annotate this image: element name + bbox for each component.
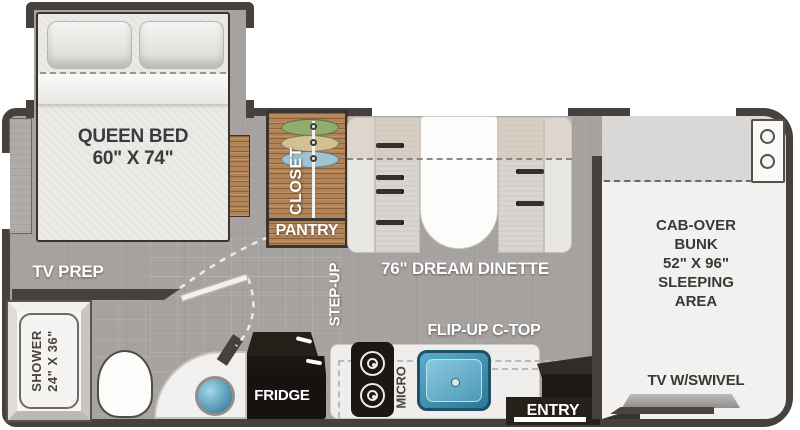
stove-burner-front (360, 383, 385, 408)
tv-base (610, 407, 714, 414)
flip-up-ctop-label: FLIP-UP C-TOP (394, 322, 574, 340)
seatbelt-2 (376, 175, 402, 180)
seatbelt-5 (518, 169, 544, 174)
bed-fold-line (40, 72, 226, 74)
wall-window-top-2 (630, 108, 736, 116)
bath-sink (195, 376, 235, 416)
overhead-panel (751, 119, 785, 183)
kitchen-sink (417, 350, 491, 411)
pantry-label: PANTRY (266, 222, 348, 240)
bedroom-wall (12, 289, 180, 300)
bunk-label-line4: SLEEPING (613, 273, 779, 292)
shower-label: SHOWER 24" X 36" (29, 306, 65, 416)
shower-label-line1: SHOWER (29, 306, 45, 416)
dinette-label: 76" DREAM DINETTE (355, 259, 575, 279)
stove-burner-front-dot (372, 395, 376, 399)
rv-floorplan-canvas: QUEEN BED 60" X 74" TV PREP CLOSET PANTR… (0, 0, 800, 430)
tv-unit (622, 394, 740, 408)
queen-bed-size-label: 60" X 74" (38, 148, 228, 170)
wall-window-left (2, 153, 10, 229)
stove-cooktop (351, 342, 394, 417)
toilet (97, 350, 153, 418)
bed-pillow-left (47, 21, 132, 69)
seatbelt-6 (518, 201, 544, 206)
entry-threshold (514, 417, 586, 422)
seatbelt-4 (376, 220, 402, 225)
kitchen-sink-faucet (451, 378, 460, 387)
hanger-hook-3 (310, 155, 317, 162)
seatbelt-3 (376, 189, 402, 194)
queen-bed-label: QUEEN BED 60" X 74" (38, 126, 228, 170)
step-up-label: STEP-UP (327, 248, 344, 342)
bed-pillow-right (139, 21, 224, 69)
slideout-window-right (246, 28, 254, 100)
fridge: FRIDGE (238, 375, 326, 419)
bunk-slide-line (604, 180, 752, 182)
bunk-label-line5: AREA (613, 292, 779, 311)
hanger-hook-2 (310, 139, 317, 146)
slideout-window-left (26, 28, 34, 100)
closet-pantry-divider (269, 218, 345, 221)
panel-knob-2 (760, 154, 775, 169)
stove-burner-rear (360, 351, 385, 376)
wall-window-top-1 (372, 108, 568, 116)
bunk-label-line2: BUNK (613, 235, 779, 254)
stove-burner-rear-dot (372, 363, 376, 367)
bunk-wall (592, 156, 602, 419)
fridge-label: FRIDGE (238, 387, 326, 404)
hanger-hook-1 (310, 123, 317, 130)
panel-knob-1 (760, 129, 775, 144)
bunk-label-line1: CAB-OVER (613, 216, 779, 235)
counter-dash-left (338, 360, 340, 418)
dinette-table (420, 116, 498, 249)
bunk-label: CAB-OVER BUNK 52" X 96" SLEEPING AREA (613, 216, 779, 311)
seatbelt-1 (376, 143, 402, 148)
shower-size-label: 24" X 36" (45, 306, 61, 416)
fridge-top-face-upper (246, 332, 318, 356)
queen-bed-label-line1: QUEEN BED (38, 126, 228, 148)
micro-label: MICRO (394, 353, 409, 423)
bunk-label-line3: 52" X 96" (613, 254, 779, 273)
dinette-slide-line (347, 158, 572, 160)
tv-swivel-label: TV W/SWIVEL (613, 372, 779, 389)
bed-sheet (38, 74, 228, 104)
closet-label: CLOSET (288, 136, 306, 226)
wardrobe-cabinet (228, 136, 249, 216)
closet-rod (312, 121, 315, 219)
nightstand-cabinet (10, 119, 31, 233)
tv-prep-label: TV PREP (18, 262, 118, 282)
queen-bed: QUEEN BED 60" X 74" (36, 12, 230, 242)
